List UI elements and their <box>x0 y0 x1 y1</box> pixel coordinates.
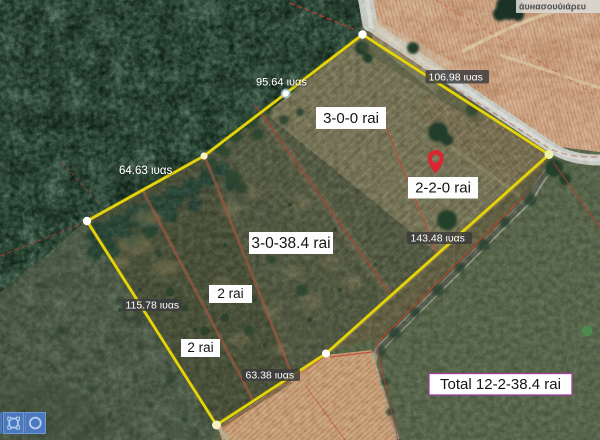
svg-text:64.63 ιυαs: 64.63 ιυαs <box>119 165 172 177</box>
svg-text:3-0-0 rai: 3-0-0 rai <box>323 110 379 127</box>
svg-text:143.48 ιυαs: 143.48 ιυαs <box>411 233 465 245</box>
svg-text:2 rai: 2 rai <box>187 340 213 355</box>
svg-text:Total 12-2-38.4 rai: Total 12-2-38.4 rai <box>440 376 561 393</box>
svg-text:2-2-0 rai: 2-2-0 rai <box>415 180 471 197</box>
svg-text:3-0-38.4 rai: 3-0-38.4 rai <box>251 235 330 252</box>
svg-text:63.38 ιυαs: 63.38 ιυαs <box>246 370 295 382</box>
svg-text:2 rai: 2 rai <box>217 286 243 301</box>
svg-text:95.64 ιυαs: 95.64 ιυαs <box>256 77 307 89</box>
svg-text:115.78 ιυαs: 115.78 ιυαs <box>126 300 180 312</box>
svg-text:106.98 ιυαs: 106.98 ιυαs <box>429 72 483 84</box>
svg-text:άυнασουύιάρευ: άυнασουύιάρευ <box>519 2 586 12</box>
